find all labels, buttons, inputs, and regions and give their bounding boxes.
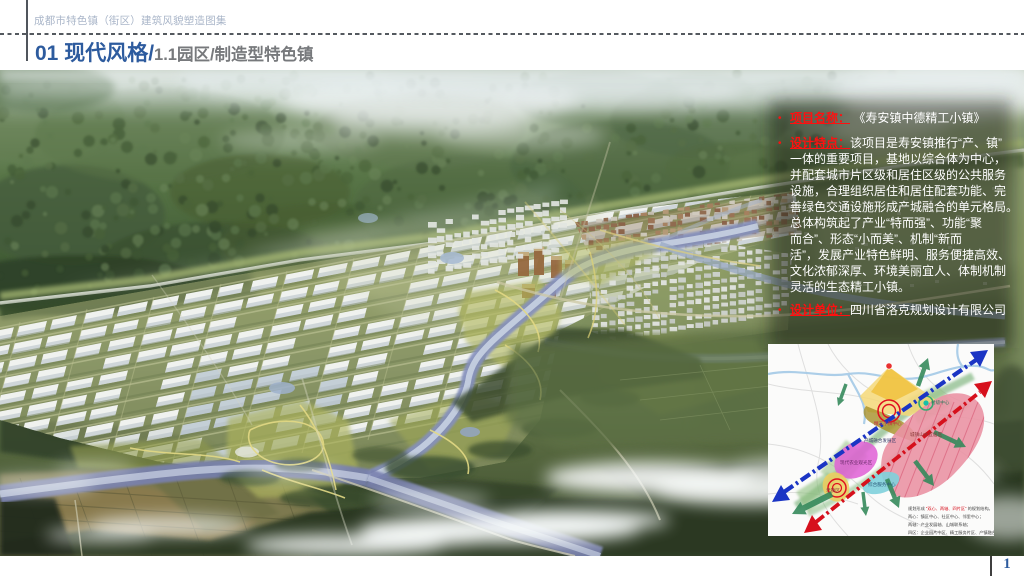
svg-text:两轴：产业发展轴、山城联系轴；: 两轴：产业发展轴、山城联系轴； <box>908 521 971 528</box>
svg-text:产城融合发展区: 产城融合发展区 <box>864 437 897 444</box>
svg-text:四区：企业园片中区、精工服务片区、产镇融合片区、宜居片区: 四区：企业园片中区、精工服务片区、产镇融合片区、宜居片区 <box>908 529 994 536</box>
svg-text:村级中心: 村级中心 <box>931 399 950 406</box>
svg-text:老镇区: 老镇区 <box>826 487 840 494</box>
svg-text:综合服务中心: 综合服务中心 <box>868 481 896 488</box>
svg-text:两心：镇区中心、社区中心、邻里中心；: 两心：镇区中心、社区中心、邻里中心； <box>908 513 983 520</box>
svg-text:城镇山水宜居区: 城镇山水宜居区 <box>910 431 943 438</box>
svg-text:规划形成 “双心、两轴、四片区” 的规划结构。: 规划形成 “双心、两轴、四片区” 的规划结构。 <box>908 505 993 512</box>
svg-text:精工小镇中心: 精工小镇中心 <box>874 420 902 427</box>
svg-text:现代农业观光区: 现代农业观光区 <box>840 459 873 466</box>
